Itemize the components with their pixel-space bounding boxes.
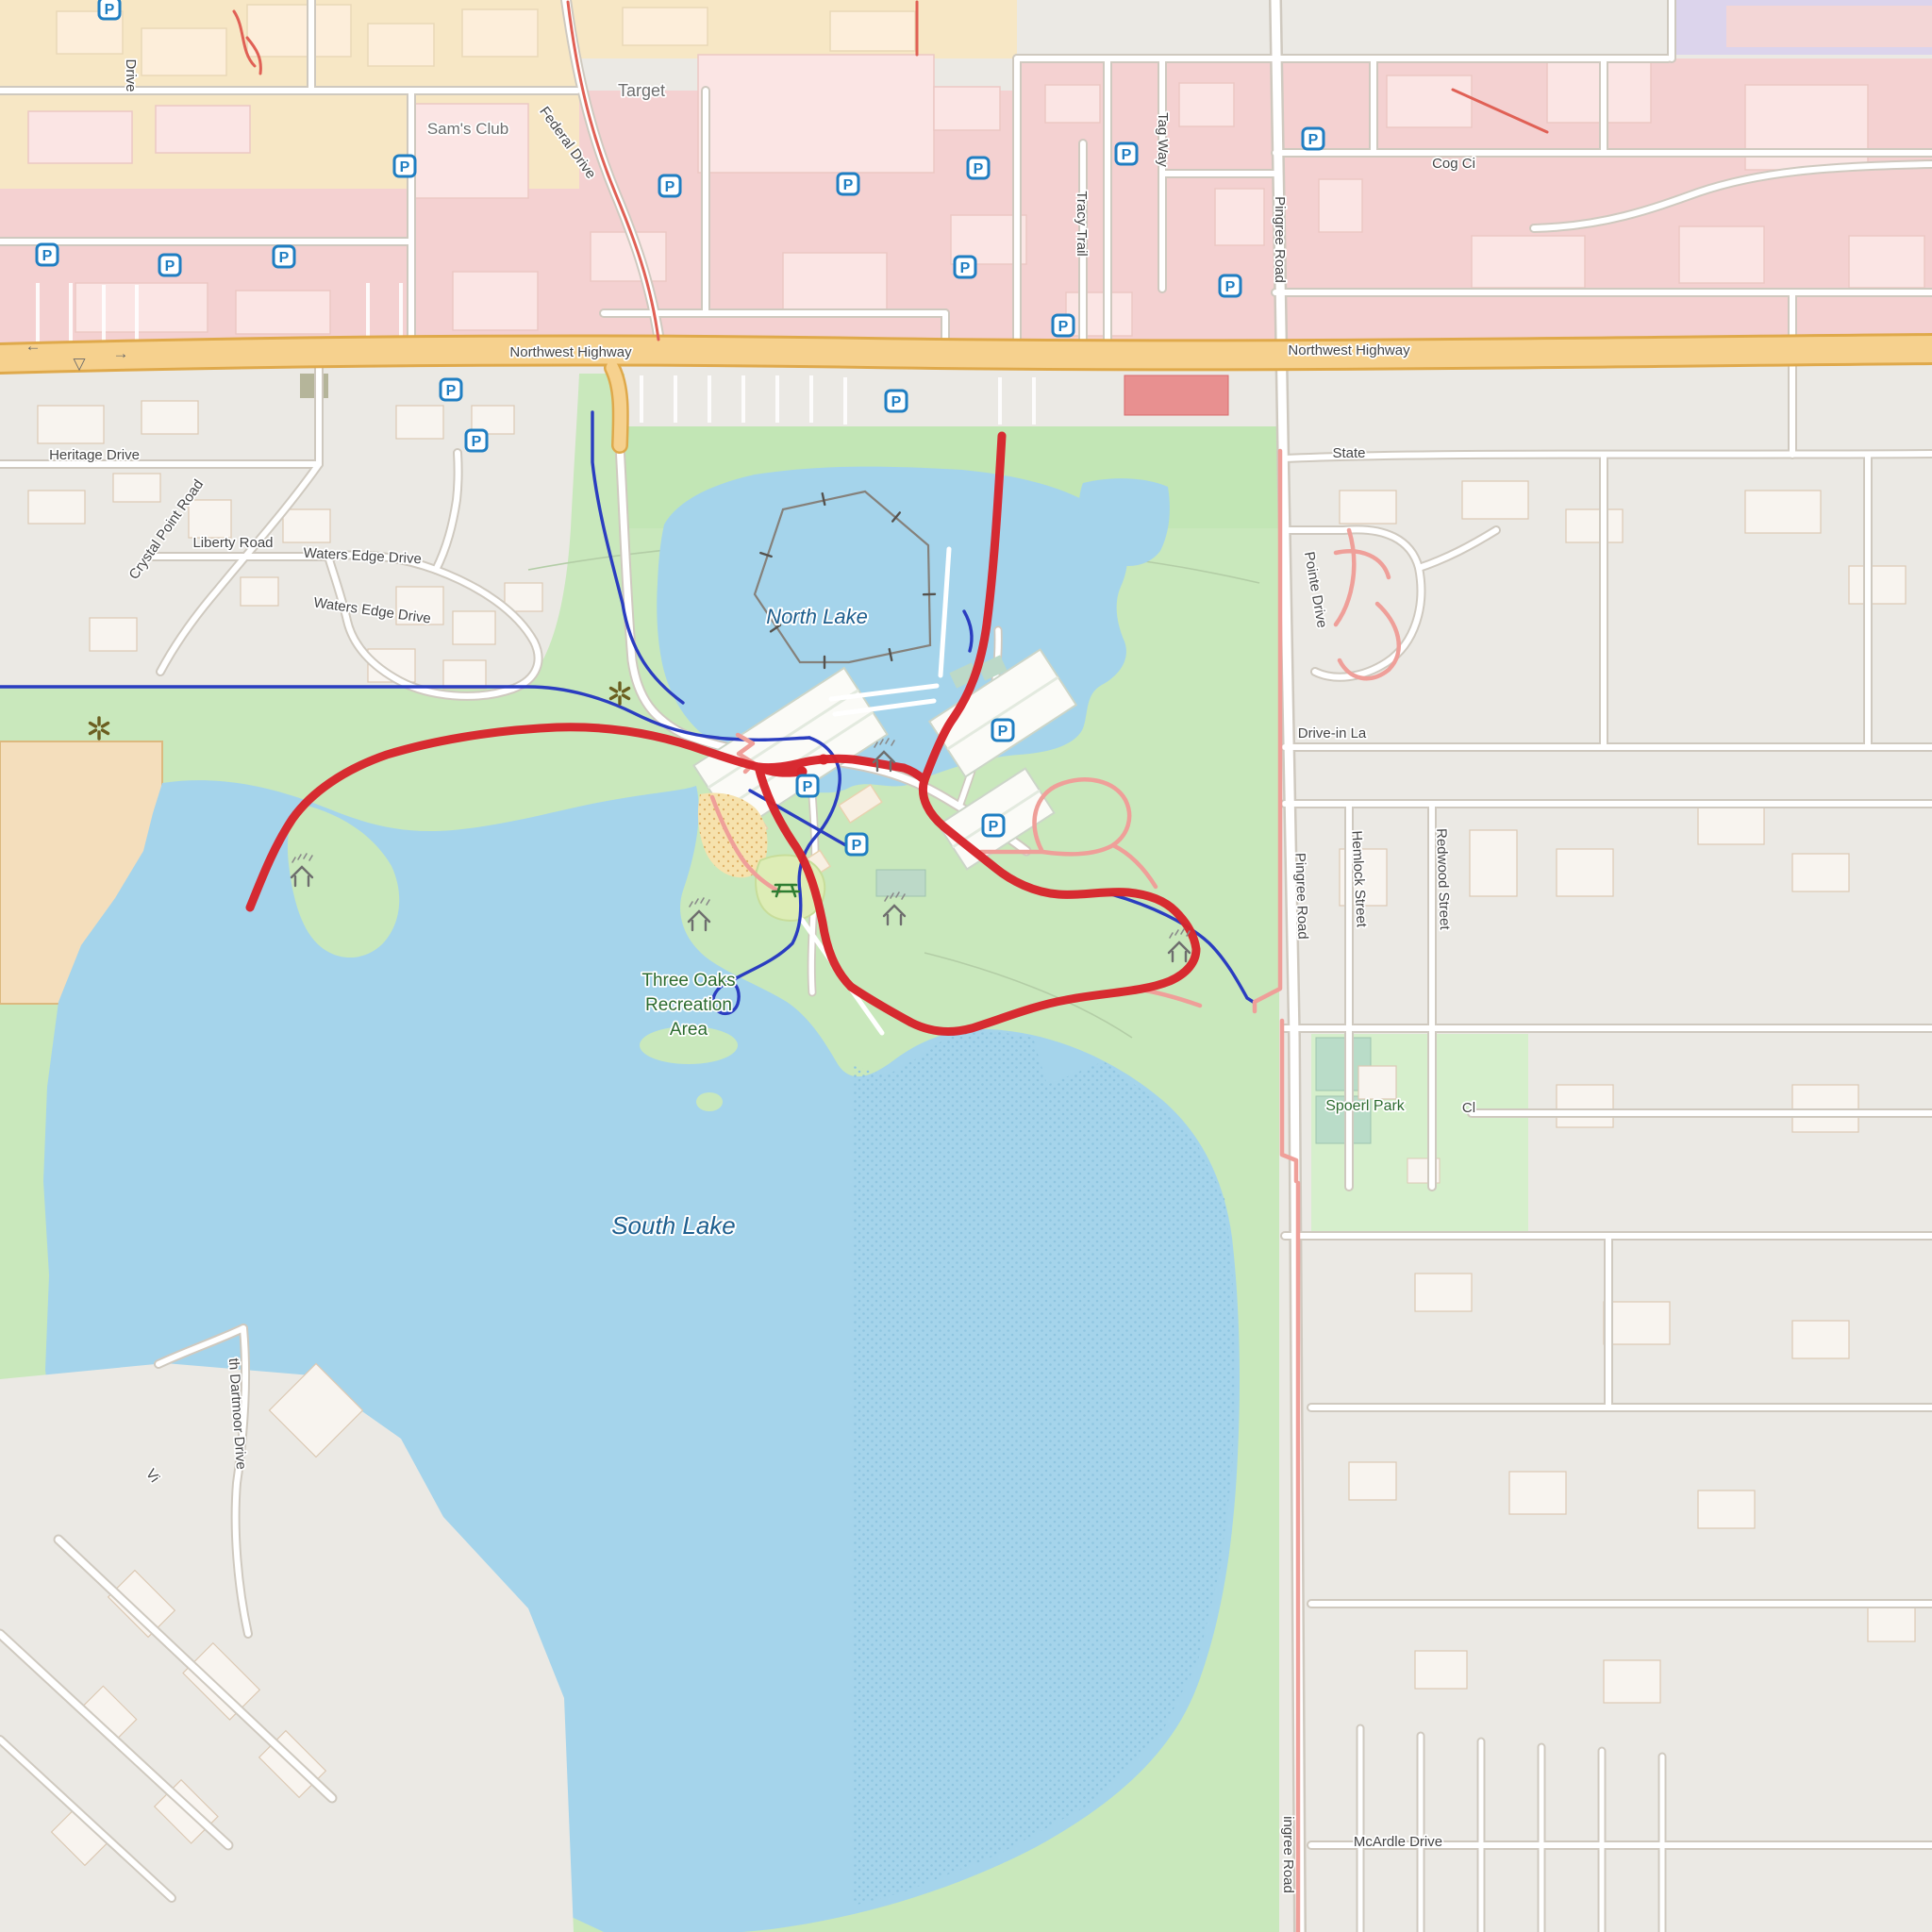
svg-text:P: P	[803, 779, 813, 795]
svg-text:P: P	[279, 250, 290, 266]
map-label-drive-in-la: Drive-in La	[1298, 725, 1367, 741]
svg-text:P: P	[105, 2, 115, 18]
parking-icon: P	[797, 775, 818, 796]
parking-icon: P	[441, 379, 461, 400]
parking-icon: P	[968, 158, 989, 178]
svg-text:P: P	[42, 248, 53, 264]
parking-icon: P	[1303, 128, 1324, 149]
highway-direction-arrow: →	[113, 344, 129, 362]
map-label-northwest-highway: Northwest Highway	[1288, 342, 1410, 358]
map-label-ingree-road: ingree Road	[1280, 1816, 1296, 1893]
svg-text:P: P	[165, 258, 175, 275]
svg-text:P: P	[974, 161, 984, 177]
svg-text:P: P	[891, 394, 902, 410]
map-label-cl: Cl	[1462, 1100, 1475, 1116]
svg-text:P: P	[1308, 132, 1319, 148]
svg-text:P: P	[472, 434, 482, 450]
pool	[876, 870, 925, 896]
parking-icon: P	[159, 255, 180, 275]
parking-icon: P	[466, 430, 487, 451]
map-viewport[interactable]: DriveSam's ClubFederal DriveTargetTag Wa…	[0, 0, 1932, 1932]
map-label-target: Target	[618, 81, 665, 100]
map-label-liberty-road: Liberty Road	[192, 535, 273, 551]
map-label-spoerl-park: Spoerl Park	[1325, 1098, 1406, 1114]
svg-text:P: P	[665, 179, 675, 195]
map-label-south-lake: South Lake	[611, 1211, 736, 1240]
map-label-north-lake: North Lake	[766, 605, 868, 628]
parking-icon: P	[1053, 315, 1074, 336]
map-label-sam-s-club: Sam's Club	[427, 120, 508, 138]
parking-icon: P	[659, 175, 680, 196]
svg-text:P: P	[446, 383, 457, 399]
map-canvas[interactable]: DriveSam's ClubFederal DriveTargetTag Wa…	[0, 0, 1932, 1932]
parking-icon: P	[394, 156, 415, 176]
svg-text:P: P	[1122, 147, 1132, 163]
parking-icon: P	[846, 834, 867, 855]
parking-icon: P	[983, 815, 1004, 836]
svg-text:P: P	[998, 724, 1008, 740]
highway-direction-arrow: ←	[25, 337, 42, 355]
map-label-drive: Drive	[123, 58, 139, 92]
svg-text:P: P	[852, 838, 862, 854]
svg-text:P: P	[989, 819, 999, 835]
parking-icon: P	[1220, 275, 1241, 296]
map-label-state: State	[1332, 445, 1365, 461]
svg-text:P: P	[843, 177, 854, 193]
highway-direction-arrow: ▽	[73, 355, 86, 373]
map-label-pingree-road: Pingree Road	[1291, 853, 1310, 940]
map-label-tracy-trail: Tracy Trail	[1074, 191, 1090, 256]
map-label-cog-ci: Cog Ci	[1432, 156, 1475, 172]
parking-icon: P	[886, 391, 907, 411]
map-label-northwest-highway: Northwest Highway	[509, 344, 632, 360]
parking-icon: P	[955, 257, 975, 277]
map-label-tag-way: Tag Way	[1155, 112, 1171, 167]
track-endpoint-dot	[819, 755, 829, 765]
parking-icon: P	[1116, 143, 1137, 164]
red-building	[1124, 375, 1228, 415]
parking-icon: P	[37, 244, 58, 265]
parking-icon: P	[838, 174, 858, 194]
map-label-heritage-drive: Heritage Drive	[49, 447, 140, 463]
map-label-mcardle-drive: McArdle Drive	[1354, 1834, 1442, 1850]
map-label-pingree-road: Pingree Road	[1272, 196, 1288, 283]
svg-text:P: P	[400, 159, 410, 175]
svg-text:P: P	[960, 260, 971, 276]
parking-icon: P	[992, 720, 1013, 741]
parking-icon: P	[274, 246, 294, 267]
svg-text:P: P	[1225, 279, 1236, 295]
svg-text:P: P	[1058, 319, 1069, 335]
purple-block-inner	[1726, 6, 1932, 47]
parking-icon: P	[99, 0, 120, 19]
